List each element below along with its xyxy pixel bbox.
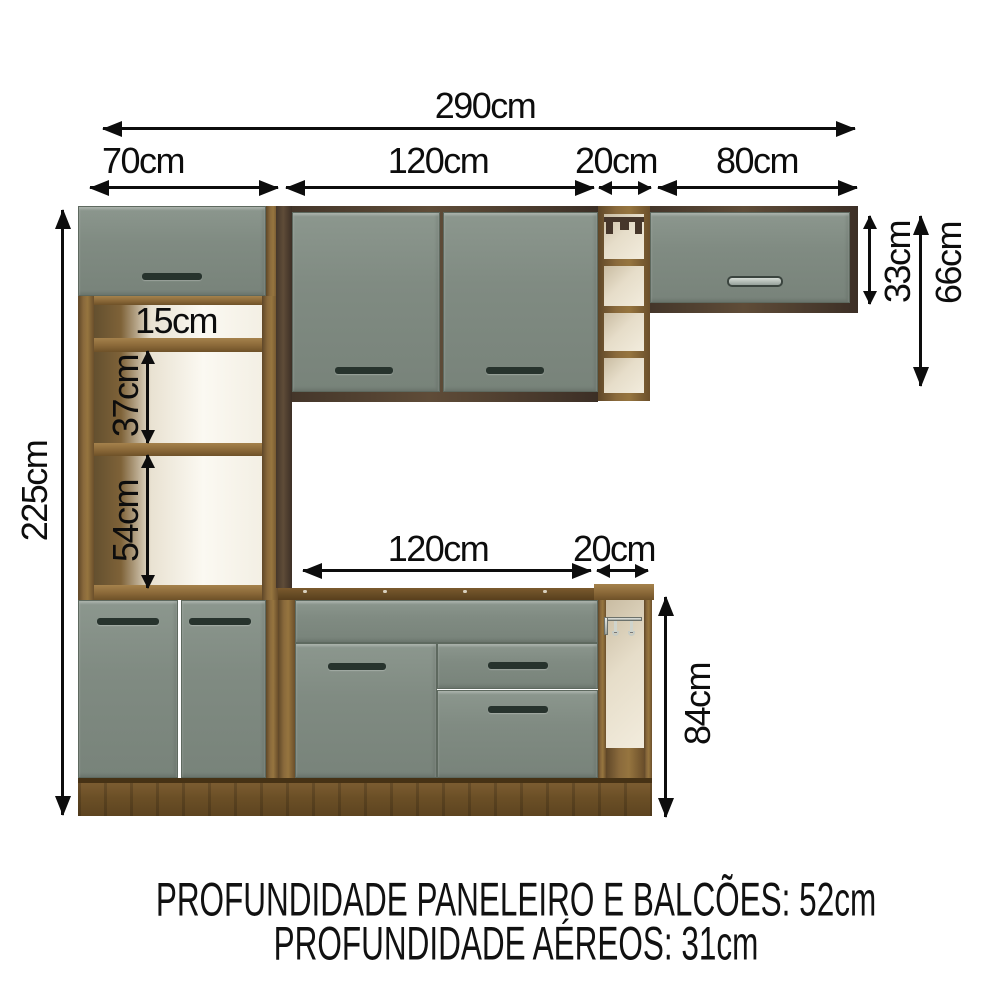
dim-gap54-label: 54cm <box>108 480 144 562</box>
dim-upper-section-height-arrow <box>919 216 922 386</box>
dim-upper-niche-width-label: 20cm <box>575 143 657 179</box>
dim-base-cabinet-width-label: 120cm <box>388 531 489 567</box>
towel-hook-1 <box>614 621 617 632</box>
dim-upper-right-width-arrow <box>658 186 857 189</box>
base-cabinet-left-panel <box>278 595 295 778</box>
pantry-bottom-door-left <box>78 600 178 778</box>
base-niche-top <box>594 584 654 600</box>
dim-upper-right-width-label: 80cm <box>716 143 798 179</box>
base-cabinet-door-handle <box>328 663 386 670</box>
pantry-bottom-right-panel <box>266 600 278 778</box>
depth-note-pantry: PROFUNDIDADE PANELEIRO E BALCÕES: 52cm <box>156 876 876 923</box>
center-support-column <box>276 206 292 588</box>
base-niche-interior <box>606 600 644 748</box>
kitchen-diagram: 290cm 70cm 120cm 20cm 80cm 225cm 15cm 37… <box>0 0 1000 1000</box>
screw-mark <box>303 590 307 593</box>
dim-upper-cabinet-width-arrow <box>286 186 594 189</box>
base-drawer-2 <box>437 690 598 778</box>
upper-cabinet-door-right-handle <box>486 367 544 374</box>
dim-total-width-label: 290cm <box>435 88 536 124</box>
base-niche-bottom <box>606 748 644 778</box>
pantry-bottom-door-left-handle <box>97 618 159 625</box>
upper-cabinet-door-right <box>443 212 598 392</box>
base-cabinet-top-strip <box>295 600 598 643</box>
screw-mark <box>463 590 467 593</box>
dim-tower-width-label: 70cm <box>102 143 184 179</box>
towel-rail <box>604 617 642 621</box>
pantry-top-door-handle <box>142 273 202 280</box>
pantry-shelf-2 <box>94 443 262 456</box>
dim-base-height-label: 84cm <box>680 663 716 745</box>
base-niche-right-side <box>644 600 652 778</box>
stemware-rack-tab-left <box>606 222 613 234</box>
stemware-rack-tab-right <box>635 222 642 234</box>
dim-upper-cabinet-width-label: 120cm <box>388 143 489 179</box>
towel-hook-2 <box>630 621 633 632</box>
upper-niche-compartment-2 <box>604 266 644 306</box>
upper-niche-compartment-1 <box>604 214 644 259</box>
upper-right-door <box>650 212 850 303</box>
dim-total-height-arrow <box>61 210 64 815</box>
screw-mark <box>543 590 547 593</box>
dim-upper-right-height-label: 33cm <box>880 221 916 303</box>
pantry-left-frame <box>78 296 94 600</box>
plinth <box>78 778 652 816</box>
dim-upper-right-height-arrow <box>868 216 871 304</box>
dim-gap37-arrow <box>146 351 149 443</box>
base-drawer-2-handle <box>488 706 548 713</box>
pantry-bottom-door-right-handle <box>189 618 251 625</box>
dim-base-niche-width-arrow <box>597 569 648 572</box>
dim-upper-niche-width-arrow <box>599 186 651 189</box>
upper-niche-compartment-3 <box>604 313 644 351</box>
pantry-counter-shelf <box>94 585 262 600</box>
upper-niche-compartment-4 <box>604 358 644 393</box>
dim-tower-width-arrow <box>90 186 278 189</box>
dim-base-niche-width-label: 20cm <box>573 531 655 567</box>
dim-gap37-label: 37cm <box>108 355 144 437</box>
dim-total-height-label: 225cm <box>17 441 53 542</box>
dim-gap54-arrow <box>146 455 149 588</box>
base-cabinet-top <box>278 588 598 600</box>
upper-cabinet-door-left <box>292 212 440 392</box>
stemware-rack-tab-center <box>620 222 629 230</box>
pantry-bottom-door-right <box>181 600 266 778</box>
towel-rail-bracket <box>604 617 608 635</box>
dim-total-width-arrow <box>103 127 855 130</box>
upper-cabinet-door-left-handle <box>335 367 393 374</box>
base-drawer-1-handle <box>488 662 548 669</box>
pantry-top-door <box>78 206 266 296</box>
dim-base-height-arrow <box>664 597 667 817</box>
upper-right-door-handle <box>727 276 783 287</box>
dim-upper-section-height-label: 66cm <box>931 222 967 304</box>
depth-note-uppers: PROFUNDIDADE AÉREOS: 31cm <box>274 920 759 967</box>
screw-mark <box>383 590 387 593</box>
dim-gap15-label: 15cm <box>135 303 217 339</box>
dim-base-cabinet-width-arrow <box>303 569 591 572</box>
